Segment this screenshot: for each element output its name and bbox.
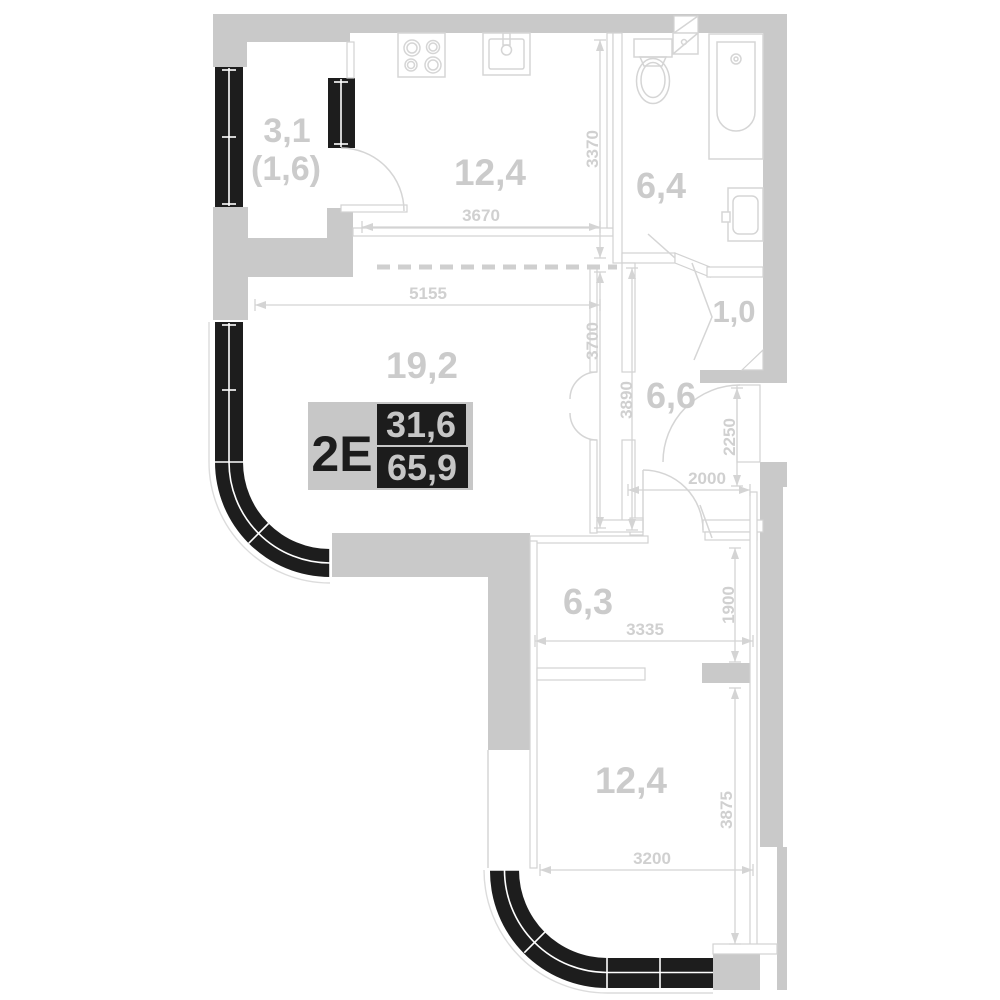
bathtub-icon xyxy=(709,34,763,159)
dim-label-3670: 3670 xyxy=(462,206,500,225)
corner-shelf xyxy=(742,350,763,370)
room-label-balcony: 3,1 xyxy=(263,112,310,150)
dim-label-2000: 2000 xyxy=(688,469,726,488)
floor-plan: 3370 3670 5155 3700 3890 2250 xyxy=(0,0,1000,1000)
dim-label-3335: 3335 xyxy=(626,620,664,639)
dim-label-5155: 5155 xyxy=(409,284,447,303)
room-label-storage: 1,0 xyxy=(712,294,755,329)
unit-type-label: 2Е xyxy=(311,426,372,482)
dim-label-3200: 3200 xyxy=(633,849,671,868)
room-label-kitchen: 12,4 xyxy=(454,152,526,193)
washing-machine-icon xyxy=(722,188,763,241)
dim-label-3875: 3875 xyxy=(717,791,736,829)
floor-plan-drawing: 3370 3670 5155 3700 3890 2250 xyxy=(0,0,1000,1000)
stove-icon xyxy=(398,33,445,77)
room-label-bathroom: 6,4 xyxy=(636,165,686,206)
dim-label-1900: 1900 xyxy=(719,586,738,624)
living-area-value: 31,6 xyxy=(386,404,456,445)
corner-sink-icon xyxy=(673,33,698,54)
living-door-arc-lower xyxy=(570,413,597,440)
dim-label-3370: 3370 xyxy=(583,130,602,168)
dim-label-2250: 2250 xyxy=(720,418,739,456)
balcony-door-arc xyxy=(341,148,404,211)
living-door-arc-upper xyxy=(570,372,597,399)
room-label-living: 19,2 xyxy=(386,345,458,386)
entrance-niche xyxy=(737,385,760,462)
toilet-icon xyxy=(634,39,672,104)
room-label-bedroom: 12,4 xyxy=(595,760,667,801)
dim-label-3700: 3700 xyxy=(583,322,602,360)
dim-label-3890: 3890 xyxy=(617,381,636,419)
unit-badge: 2Е 31,6 65,9 xyxy=(308,402,473,490)
room-label-balcony-secondary: (1,6) xyxy=(251,150,321,188)
kitchen-sink-icon xyxy=(483,33,530,75)
total-area-value: 65,9 xyxy=(387,447,457,488)
room-label-corridor: 6,3 xyxy=(563,581,613,622)
room-label-hallway: 6,6 xyxy=(646,375,696,416)
